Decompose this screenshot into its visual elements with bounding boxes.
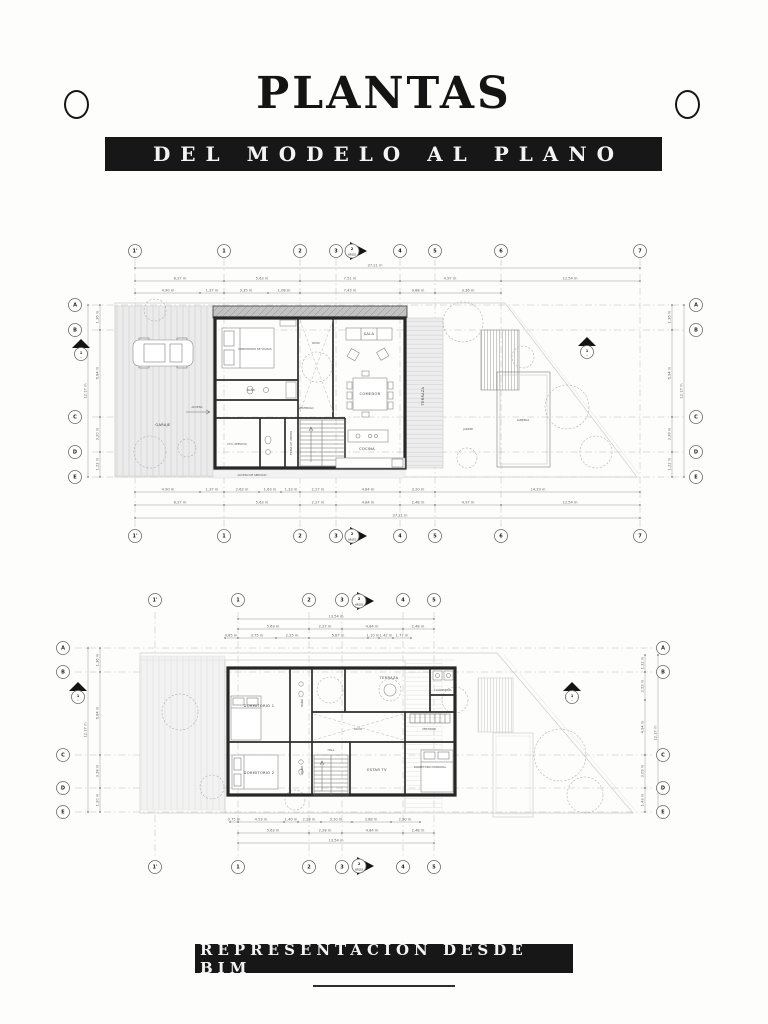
dim-label: 4.84 m [362, 501, 375, 505]
dim-label: 1.43 m [641, 793, 645, 806]
dim-label: 0.75 m [228, 818, 241, 822]
grid-bubble-label: 3 [340, 865, 344, 871]
room-label: BAÑO [299, 699, 304, 707]
dim-label: 1.10 m [367, 634, 380, 638]
grid-bubble-label: C [73, 415, 77, 421]
section-marker-sheet: ARQ02 [355, 604, 363, 607]
dim-label: 3.28 m [96, 764, 100, 777]
footer-text: REPRESENTACIÓN DESDE BIM [200, 941, 573, 977]
grid-bubble-label: A [61, 646, 65, 652]
dim-label: 6.94 m [668, 366, 672, 379]
room-label: DORMITORIO 1 [244, 704, 275, 708]
grid-bubble-label: 5 [433, 534, 437, 540]
dim-label: 4.90 m [162, 289, 175, 293]
dim-label: 3.20 m [96, 427, 100, 440]
grid-bubble-label: B [661, 670, 665, 676]
dim-label: 7.51 m [344, 277, 357, 281]
dim-label: 1.63 m [264, 488, 277, 492]
section-marker-sheet: ARQ02 [355, 869, 363, 872]
dim-label: 2.28 m [303, 818, 316, 822]
dim-label: 5.63 m [267, 625, 280, 629]
grid-bubble-label: B [694, 328, 698, 334]
room-label: COMEDOR [360, 392, 381, 396]
dim-label: 12.17 m [654, 725, 658, 740]
room-label: JARDÍN [462, 426, 472, 431]
dim-label: 1.33 m [285, 488, 298, 492]
section-marker-bottom: 2 ARQ02 [345, 527, 367, 545]
laundry-appliances [433, 671, 453, 680]
dim-label: 37.21 m [368, 264, 383, 268]
floor-plan-drawings: GARAJE DORMITORIO DE VISITAS BAÑO PATIO … [0, 0, 768, 1024]
room-label: ALBERCA [517, 418, 529, 422]
grid-bubble-label: A [73, 303, 77, 309]
dim-label: 1.36 m [668, 310, 672, 323]
dim-label: 1.42 m [380, 634, 393, 638]
grid-bubble-label: 3 [334, 249, 338, 255]
section-marker-left: 1 — [72, 339, 90, 361]
dim-label: 4.53 m [255, 818, 268, 822]
ground-floor-plan: GARAJE DORMITORIO DE VISITAS BAÑO PATIO … [69, 242, 703, 545]
garage-deck-boards [115, 306, 213, 476]
dim-label: 3.20 m [412, 488, 425, 492]
wardrobe [280, 320, 296, 326]
room-label: CTO. SERVICIO [227, 442, 247, 446]
grid-bubble-label: 2 [298, 534, 302, 540]
stairs [314, 755, 348, 795]
dim-label: 5.63 m [256, 501, 269, 505]
dim-label: 2.48 m [412, 625, 425, 629]
room-label: LAVANDERÍA [434, 687, 451, 692]
section-marker-top: 2 ARQ02 [345, 242, 367, 260]
dim-label: 4.84 m [362, 488, 375, 492]
dim-label: 2.53 m [641, 679, 645, 692]
grid-bubble-label: E [61, 810, 65, 816]
room-label: DORMITORIO DE VISITAS [238, 347, 272, 351]
dim-label: 5.63 m [267, 829, 280, 833]
section-marker-top: 2 ARQ02 [352, 592, 374, 610]
grid-bubble-label: C [694, 415, 698, 421]
roof-band-hatch [213, 306, 407, 318]
dim-label: 4.97 m [462, 501, 475, 505]
grid-bubble-label: 4 [401, 598, 405, 604]
poster-page: PLANTAS DEL MODELO AL PLANO [0, 0, 768, 1024]
dim-label: 1.32 m [641, 656, 645, 669]
grid-bubble-label: D [61, 786, 65, 792]
dim-label: 1.20 m [96, 793, 100, 806]
car-icon [133, 338, 193, 368]
grid-bubble-label: B [61, 670, 65, 676]
dim-label: 5.63 m [256, 277, 269, 281]
dim-label: 6.27 m [174, 501, 187, 505]
pool-ghost [493, 733, 533, 817]
grid-bubble-label: 7 [638, 249, 642, 255]
grid-bubble-label: 1' [152, 598, 157, 604]
grid-bubble-label: 5 [433, 249, 437, 255]
dim-label: 5.87 m [332, 634, 345, 638]
dim-label: 1.08 m [278, 289, 291, 293]
dim-label: 3.88 m [365, 818, 378, 822]
dim-label: 0.88 m [412, 289, 425, 293]
dim-label: 2.90 m [399, 818, 412, 822]
dim-label: 13.54 m [329, 839, 344, 843]
dim-label: 2.27 m [319, 625, 332, 629]
section-marker-bottom: 2 ARQ02 [352, 857, 374, 875]
grid-bubble-label: 2 [298, 249, 302, 255]
dim-label: 2.48 m [412, 501, 425, 505]
room-label: ESTAR DE VISITAS [289, 431, 293, 455]
dim-label: 12.54 m [563, 501, 578, 505]
dim-label: 1.22 m [96, 457, 100, 470]
dim-label: 12.54 m [563, 277, 578, 281]
grid-bubble-label: 2 [307, 598, 311, 604]
pool-ghost-inner [496, 736, 530, 814]
upper-floor-plan: DORMITORIO 1 BAÑO TERRAZA LAVANDERÍA VES… [57, 592, 670, 875]
room-label: HALL [328, 748, 335, 752]
grid-bubble-label: 2 [307, 865, 311, 871]
grid-bubble-label: 1 [222, 534, 226, 540]
dim-label: 1.40 m [285, 818, 298, 822]
dim-label: 37.21 m [393, 514, 408, 518]
grid-bubble-label: D [694, 450, 698, 456]
grid-bubble-label: 5 [432, 598, 436, 604]
dim-label: 2.25 m [286, 634, 299, 638]
dim-label: 12.17 m [84, 722, 88, 737]
grid-bubble-label: A [694, 303, 698, 309]
dim-label: 4.90 m [162, 488, 175, 492]
room-label: VACÍO [354, 726, 362, 731]
grid-bubble-label: 3 [334, 534, 338, 540]
site-boundary-offset [509, 305, 639, 474]
dim-label: 0.85 m [225, 634, 238, 638]
grid-bubble-label: 1 [236, 598, 240, 604]
dim-label: 3.10 m [330, 818, 343, 822]
grid-bubble-label: 4 [401, 865, 405, 871]
grid-bubble-label: 1 [222, 249, 226, 255]
dim-label: 1.37 m [206, 488, 219, 492]
dim-label: 1.36 m [96, 310, 100, 323]
room-label: SALA [364, 332, 375, 336]
grid-bubble-label: D [73, 450, 77, 456]
grid-bubble-label: 5 [432, 865, 436, 871]
dim-label: 3.09 m [641, 764, 645, 777]
terrace-table [379, 679, 401, 701]
bath-fixtures [299, 682, 303, 775]
room-label: TERRAZA [379, 676, 399, 680]
room-label: BAÑO [299, 766, 304, 774]
grid-bubble-label: 6 [499, 249, 503, 255]
section-marker-right: 1 — [578, 337, 596, 359]
dim-label: 3.28 m [668, 427, 672, 440]
dim-label: 2.48 m [412, 829, 425, 833]
dim-label: 1.37 m [206, 289, 219, 293]
dim-label: 2.27 m [312, 488, 325, 492]
garage-deck-ghost-boards [140, 656, 225, 810]
dim-label: 14.29 m [531, 488, 546, 492]
room-label: DORMITORIO 2 [244, 771, 275, 775]
dim-label: 4.94 m [641, 720, 645, 733]
grid-bubble-label: C [61, 753, 65, 759]
dim-label: 3.36 m [462, 289, 475, 293]
grid-bubble-label: 7 [638, 534, 642, 540]
room-label: DORMITORIO PRINCIPAL [414, 765, 447, 769]
bed-1 [231, 696, 261, 740]
footer-banner: REPRESENTACIÓN DESDE BIM [195, 944, 573, 973]
grid-bubble-label: A [661, 646, 665, 652]
room-label: ACCESO DE SERVICIO [237, 473, 266, 477]
dim-label: 3.35 m [240, 289, 253, 293]
dim-label: 1.22 m [668, 457, 672, 470]
room-label: BAÑO [247, 387, 255, 392]
grid-bubble-label: B [73, 328, 77, 334]
room-label: GARAJE [155, 423, 171, 427]
dim-label: 1.77 m [396, 634, 409, 638]
section-marker-right: 1 — [563, 682, 581, 704]
dim-label: 4.84 m [366, 625, 379, 629]
section-marker-left: 1 — [69, 682, 87, 704]
room-label: ACCESO [191, 405, 202, 409]
bed-master [421, 750, 453, 792]
dim-label: 12.17 m [680, 383, 684, 398]
dim-label: 2.63 m [236, 488, 249, 492]
grid-bubble-label: 4 [398, 534, 402, 540]
site-boundary-offset [504, 655, 635, 810]
room-label: TERRAZA [421, 386, 425, 406]
grid-bubble-label: E [694, 475, 698, 481]
dim-label: 6.27 m [174, 277, 187, 281]
grid-bubble-label: 6 [499, 534, 503, 540]
grid-bubble-label: C [661, 753, 665, 759]
dim-label: 4.84 m [366, 829, 379, 833]
room-label: VESTIDOR [422, 727, 436, 731]
dim-label: 13.54 m [329, 615, 344, 619]
grid-bubble-label: 1' [132, 534, 137, 540]
section-marker-sheet: ARQ02 [348, 539, 356, 542]
dim-label: 12.17 m [84, 383, 88, 398]
grid-bubble-label: E [73, 475, 77, 481]
grid-bubble-label: 1' [152, 865, 157, 871]
room-label: COCINA [359, 447, 375, 451]
pergola-ghost [478, 678, 513, 732]
dim-label: 7.43 m [344, 289, 357, 293]
grid-bubble-label: E [661, 810, 665, 816]
dim-label: 6.84 m [96, 366, 100, 379]
patio-void-cross [300, 320, 333, 412]
footer-divider [313, 985, 455, 987]
section-marker-sheet: ARQ02 [348, 254, 356, 257]
dim-label: 6.84 m [96, 706, 100, 719]
room-label: PATIO [312, 341, 320, 345]
grid-bubble-label: 1' [132, 249, 137, 255]
grid-bubble-label: 4 [398, 249, 402, 255]
grid-bubble-label: 3 [340, 598, 344, 604]
grid-bubble-label: D [661, 786, 665, 792]
dim-label: 2.27 m [312, 501, 325, 505]
room-label: VESTÍBULO [298, 405, 313, 410]
dim-label: 3.75 m [251, 634, 264, 638]
grid-bubble-label: 1 [236, 865, 240, 871]
dim-label: 1.36 m [96, 653, 100, 666]
room-label: ESTAR TV [367, 768, 387, 772]
dim-label: 2.28 m [319, 829, 332, 833]
dim-label: 4.97 m [444, 277, 457, 281]
